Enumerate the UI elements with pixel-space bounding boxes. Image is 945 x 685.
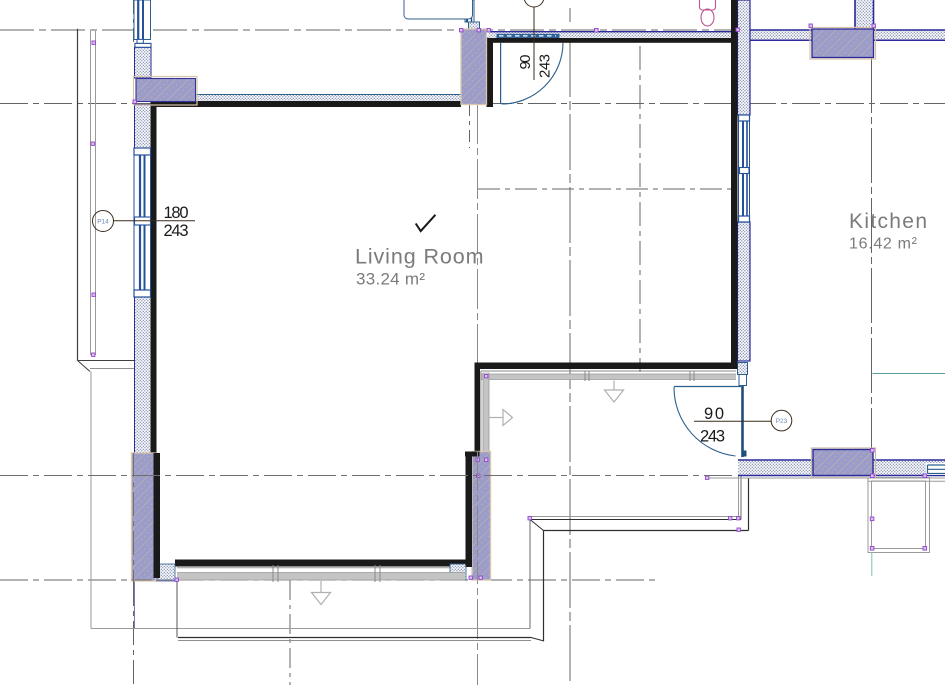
svg-text:P14: P14 [97, 219, 109, 226]
svg-text:243: 243 [536, 54, 553, 78]
svg-text:180: 180 [164, 204, 189, 222]
svg-text:16.42 m²: 16.42 m² [849, 236, 918, 253]
svg-text:243: 243 [164, 222, 189, 240]
svg-text:P23: P23 [776, 418, 788, 425]
svg-text:243: 243 [700, 428, 725, 446]
svg-text:Living Room: Living Room [355, 245, 484, 269]
svg-text:90: 90 [517, 55, 534, 70]
svg-text:90: 90 [704, 405, 724, 423]
svg-text:33.24 m²: 33.24 m² [356, 270, 425, 289]
